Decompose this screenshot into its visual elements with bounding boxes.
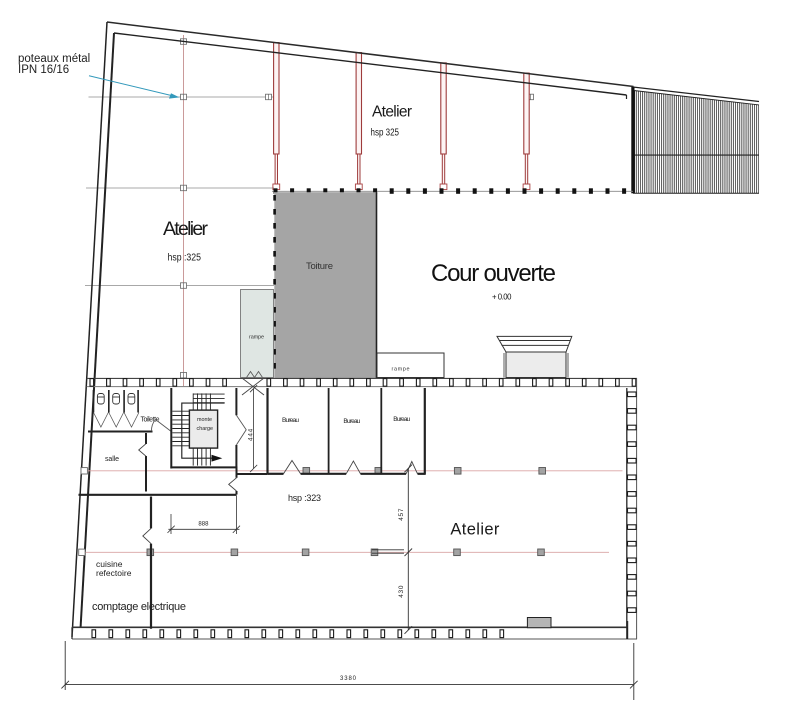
- svg-text:Bureau: Bureau: [343, 418, 360, 425]
- svg-text:charge: charge: [197, 426, 213, 432]
- svg-text:Toiture: Toiture: [306, 261, 333, 272]
- svg-text:Atelier: Atelier: [372, 104, 412, 121]
- svg-text:comptage electrique: comptage electrique: [92, 601, 186, 613]
- svg-text:hsp 325: hsp 325: [371, 128, 400, 139]
- svg-text:rampe: rampe: [249, 335, 264, 341]
- svg-text:444: 444: [248, 428, 255, 441]
- svg-text:Cour ouverte: Cour ouverte: [431, 260, 556, 287]
- svg-text:IPN 16/16: IPN 16/16: [18, 64, 69, 76]
- svg-text:rampe: rampe: [392, 367, 410, 373]
- svg-text:+ 0.00: + 0.00: [492, 293, 512, 302]
- svg-text:3380: 3380: [340, 676, 357, 682]
- svg-text:457: 457: [398, 508, 405, 521]
- svg-text:hsp :325: hsp :325: [168, 253, 202, 264]
- svg-text:430: 430: [398, 585, 405, 598]
- svg-text:Bureau: Bureau: [282, 417, 299, 424]
- svg-text:salle: salle: [105, 456, 119, 463]
- svg-text:refectoire: refectoire: [96, 568, 132, 578]
- svg-text:Bureau: Bureau: [393, 416, 410, 423]
- svg-text:monte: monte: [197, 417, 212, 423]
- svg-text:Atelier: Atelier: [450, 521, 500, 539]
- svg-text:Atelier: Atelier: [163, 218, 209, 240]
- svg-text:888: 888: [198, 521, 209, 527]
- svg-text:hsp :323: hsp :323: [288, 493, 321, 503]
